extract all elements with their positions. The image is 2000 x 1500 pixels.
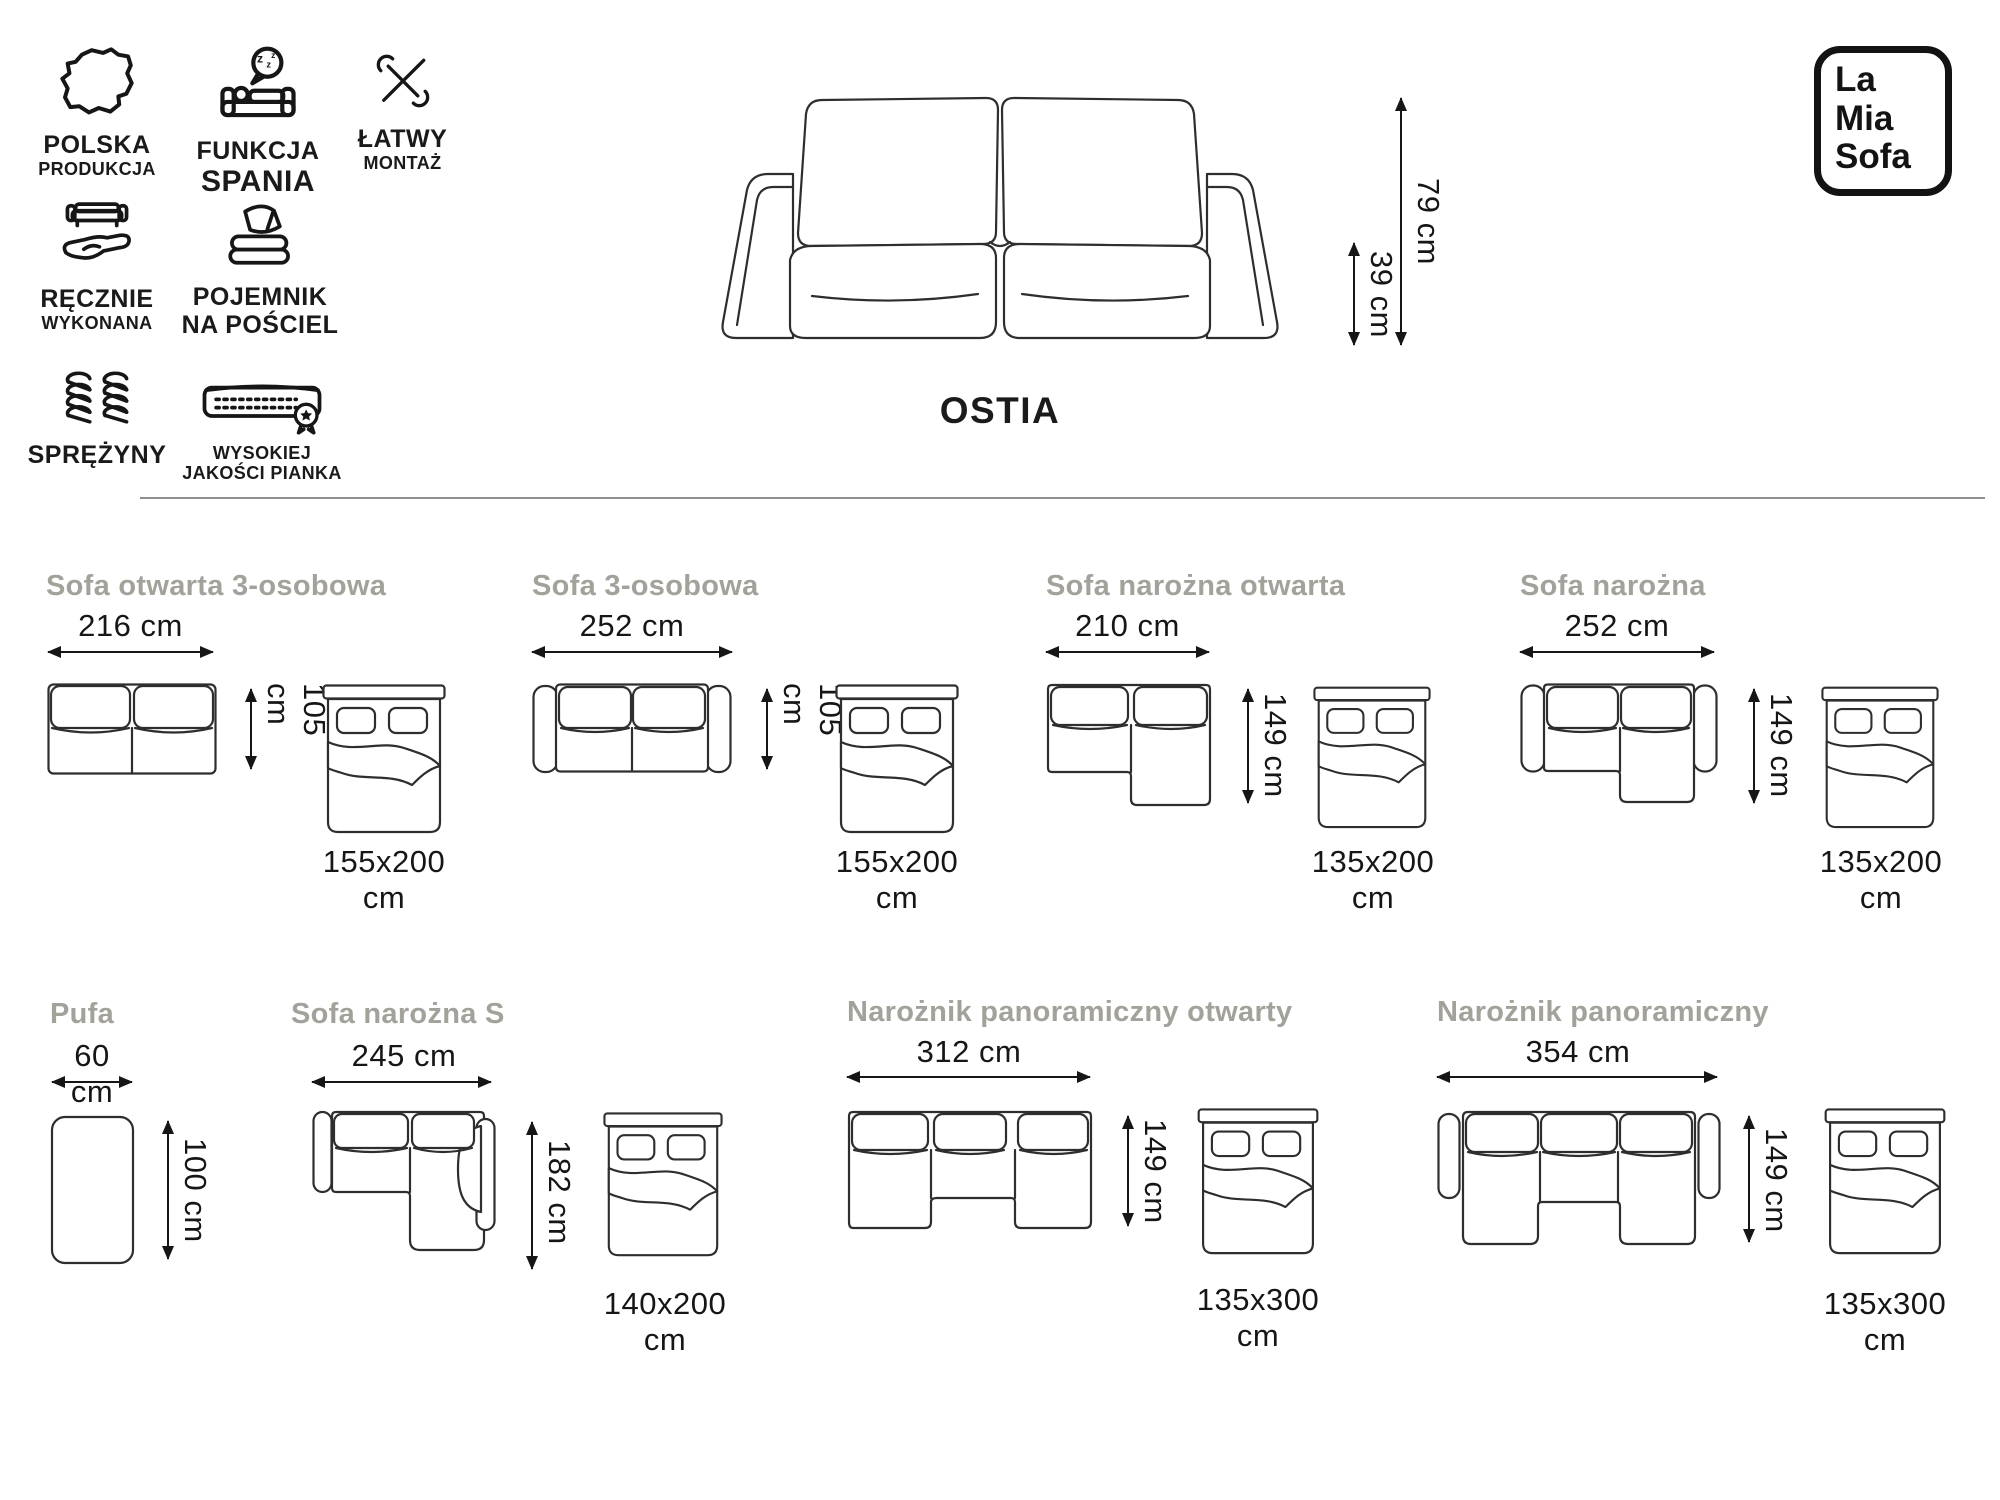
- sofa-top-view: [1520, 683, 1718, 805]
- feature-label: SPRĘŻYNY: [22, 441, 172, 469]
- bed-icon: [1824, 1108, 1946, 1260]
- width-dimension-label: 252 cm: [552, 608, 712, 644]
- variant-title: Sofa narożna otwarta: [1046, 570, 1345, 603]
- springs-icon: [53, 368, 141, 434]
- bed-icon: [835, 684, 959, 839]
- bed-icon: [322, 684, 446, 839]
- width-dimension-arrow: [1046, 651, 1209, 653]
- width-dimension-label: 252 cm: [1537, 608, 1697, 644]
- feature-wysokiej-jakosci-pianka: WYSOKIEJ JAKOŚCI PIANKA: [176, 376, 348, 483]
- sofa-top-view: [47, 683, 217, 775]
- pouf-top-view: [50, 1115, 135, 1265]
- depth-dimension-label: 149 cm: [1137, 1119, 1173, 1224]
- feature-sublabel: JAKOŚCI PIANKA: [176, 463, 348, 483]
- feature-sublabel: PRODUKCJA: [22, 159, 172, 179]
- bed-icon: [1313, 684, 1431, 836]
- feature-label: WYSOKIEJ: [176, 443, 348, 463]
- variant-title: Narożnik panoramiczny: [1437, 996, 1769, 1029]
- handmade-icon: [49, 200, 145, 278]
- width-dimension-arrow: [847, 1076, 1090, 1078]
- spec-sheet: POLSKA PRODUKCJA z z z FUNKCJA SPANIA ŁA…: [0, 0, 2000, 1500]
- width-dimension-label: 210 cm: [1046, 608, 1209, 644]
- variant-title: Pufa: [50, 998, 114, 1031]
- svg-text:z: z: [257, 52, 263, 66]
- foam-quality-icon: [198, 376, 326, 436]
- feature-sublabel: NA POŚCIEL: [176, 311, 344, 339]
- width-dimension-label: 354 cm: [1498, 1034, 1658, 1070]
- sofa-top-view: [1437, 1110, 1721, 1250]
- feature-label: RĘCZNIE: [22, 285, 172, 313]
- width-dimension-arrow: [532, 651, 732, 653]
- bed-size-label: 155x200 cm: [817, 844, 977, 916]
- brand-logo-line: La: [1835, 61, 1945, 100]
- feature-sprezyny: SPRĘŻYNY: [22, 368, 172, 469]
- feature-sublabel: WYKONANA: [22, 313, 172, 333]
- bedding-storage-icon: [214, 200, 306, 276]
- bed-icon: [603, 1112, 723, 1262]
- depth-dimension-arrow: [1753, 689, 1755, 803]
- brand-logo: La Mia Sofa: [1814, 46, 1952, 196]
- depth-dimension-label: 182 cm: [541, 1140, 577, 1245]
- depth-dimension-label: 149 cm: [1257, 693, 1293, 798]
- bed-icon: [1197, 1108, 1319, 1260]
- divider-line: [140, 497, 1985, 499]
- depth-dimension-arrow: [167, 1121, 169, 1259]
- bed-size-label: 140x200 cm: [585, 1286, 745, 1358]
- depth-dimension-arrow: [766, 689, 768, 769]
- bed-size-label: 155x200 cm: [304, 844, 464, 916]
- depth-dimension-label: 100 cm: [177, 1138, 213, 1243]
- feature-sublabel: SPANIA: [178, 165, 338, 199]
- width-dimension-label: 60 cm: [50, 1038, 134, 1110]
- bed-size-label: 135x200 cm: [1293, 844, 1453, 916]
- bed-size-label: 135x300 cm: [1805, 1286, 1965, 1358]
- width-dimension-arrow: [1520, 651, 1714, 653]
- feature-label: ŁATWY: [330, 125, 475, 153]
- bed-icon: [1821, 684, 1939, 836]
- variant-title: Narożnik panoramiczny otwarty: [847, 996, 1292, 1029]
- width-dimension-label: 216 cm: [48, 608, 213, 644]
- width-dimension-arrow: [1437, 1076, 1717, 1078]
- feature-label: POJEMNIK: [176, 283, 344, 311]
- sofa-top-view: [847, 1110, 1093, 1232]
- width-dimension-arrow: [312, 1081, 491, 1083]
- brand-logo-line: Sofa: [1835, 138, 1945, 177]
- feature-label: FUNKCJA: [178, 137, 338, 165]
- seat-height-arrow: [1353, 243, 1355, 345]
- depth-dimension-arrow: [1127, 1116, 1129, 1226]
- feature-polska-produkcja: POLSKA PRODUKCJA: [22, 44, 172, 179]
- variant-title: Sofa narożna: [1520, 570, 1706, 603]
- width-dimension-arrow: [48, 651, 213, 653]
- feature-sublabel: MONTAŻ: [330, 153, 475, 173]
- depth-dimension-label: 149 cm: [1763, 693, 1799, 798]
- brand-logo-line: Mia: [1835, 100, 1945, 139]
- sofa-top-view: [532, 683, 732, 775]
- depth-dimension-arrow: [1247, 689, 1249, 803]
- svg-text:z: z: [266, 59, 271, 69]
- variant-title: Sofa narożna S: [291, 998, 505, 1031]
- depth-dimension-arrow: [250, 689, 252, 769]
- product-title: OSTIA: [900, 390, 1100, 432]
- feature-label: POLSKA: [22, 131, 172, 159]
- seat-height-label: 39 cm: [1363, 251, 1399, 338]
- depth-dimension-label: 149 cm: [1758, 1128, 1794, 1233]
- svg-text:z: z: [271, 50, 275, 60]
- sleep-function-icon: z z z: [209, 44, 307, 130]
- variant-title: Sofa 3-osobowa: [532, 570, 759, 603]
- total-height-label: 79 cm: [1410, 178, 1446, 265]
- bed-size-label: 135x300 cm: [1178, 1282, 1338, 1354]
- easy-assembly-icon: [363, 44, 443, 118]
- depth-dimension-arrow: [1748, 1116, 1750, 1242]
- sofa-top-view: [1046, 683, 1212, 807]
- variant-title: Sofa otwarta 3-osobowa: [46, 570, 386, 603]
- width-dimension-label: 312 cm: [889, 1034, 1049, 1070]
- width-dimension-label: 245 cm: [324, 1038, 484, 1074]
- depth-dimension-arrow: [531, 1122, 533, 1269]
- poland-map-icon: [49, 44, 145, 124]
- sofa-top-view: [312, 1110, 496, 1252]
- width-dimension-arrow: [52, 1081, 132, 1083]
- feature-latwy-montaz: ŁATWY MONTAŻ: [330, 44, 475, 173]
- sofa-front-view-drawing: [690, 82, 1310, 354]
- feature-funkcja-spania: z z z FUNKCJA SPANIA: [178, 44, 338, 199]
- feature-pojemnik-na-posciel: POJEMNIK NA POŚCIEL: [176, 200, 344, 339]
- bed-size-label: 135x200 cm: [1801, 844, 1961, 916]
- feature-recznie-wykonana: RĘCZNIE WYKONANA: [22, 200, 172, 333]
- total-height-arrow: [1400, 98, 1402, 345]
